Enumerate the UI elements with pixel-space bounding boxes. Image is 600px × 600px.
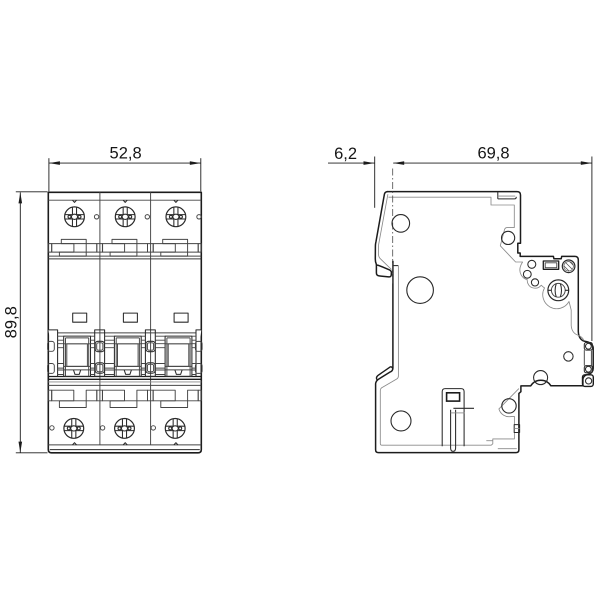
svg-text:6,2: 6,2: [334, 145, 357, 163]
svg-text:69,8: 69,8: [477, 145, 509, 163]
svg-text:52,8: 52,8: [110, 145, 142, 163]
svg-text:89,8: 89,8: [2, 306, 20, 338]
